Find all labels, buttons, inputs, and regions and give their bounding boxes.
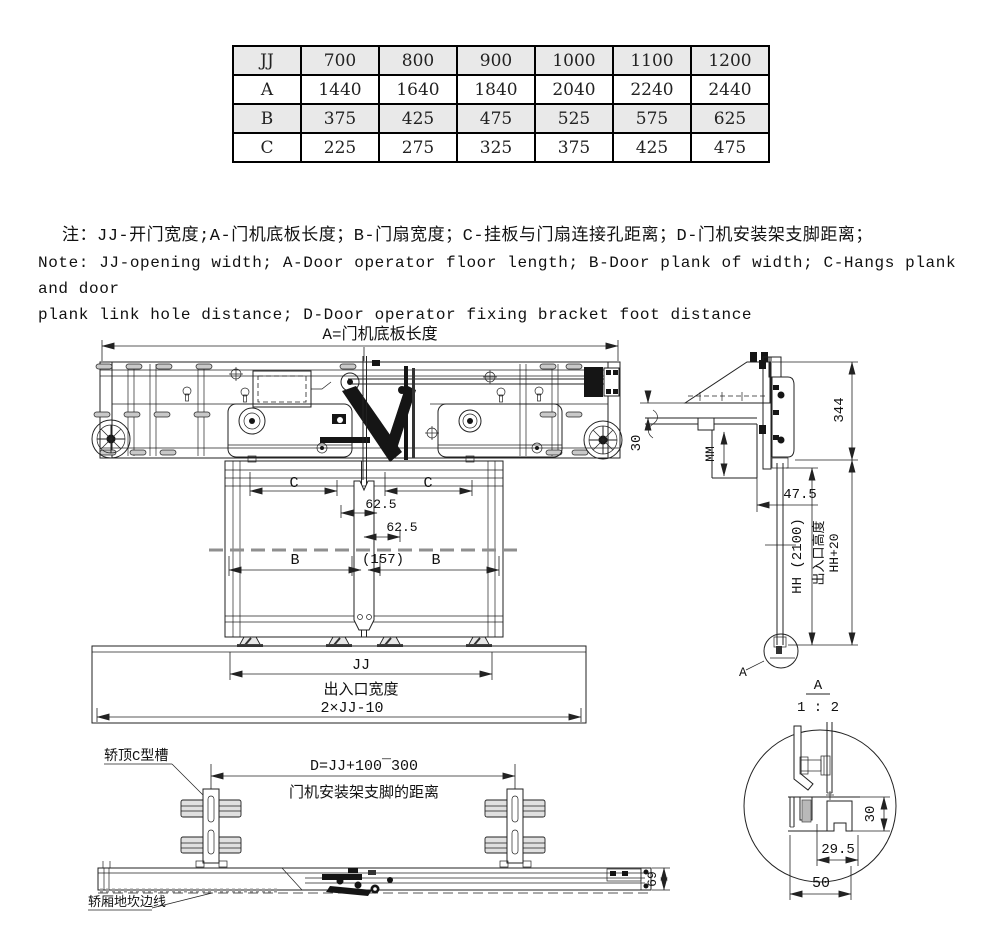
- detail-scale-value: 1 : 2: [797, 700, 839, 716]
- detail-dim-50-label: 50: [812, 875, 830, 892]
- detail-view: 30 29.5 50: [744, 722, 896, 900]
- dim-69: 69: [645, 868, 670, 890]
- entrance-height-label: 出入口高度: [811, 520, 827, 585]
- detail-dim-29-5-label: 29.5: [821, 842, 855, 858]
- drive-belt: [348, 379, 612, 384]
- right-bracket: [485, 789, 545, 867]
- dim-47-5: 47.5: [757, 470, 818, 512]
- detail-hanger-bracket: [794, 726, 813, 790]
- detail-dim-30-label: 30: [863, 806, 879, 823]
- detail-bolt: [800, 756, 830, 775]
- drawing-sheet: JJ 700 800 900 1000 1100 1200 A 1440 164…: [0, 0, 1000, 927]
- dim-69-label: 69: [645, 871, 660, 887]
- dim-a: A=门机底板长度: [102, 325, 618, 361]
- dim-total-label: 2×JJ-10: [320, 700, 383, 717]
- dim-344-label: 344: [832, 397, 848, 422]
- detail-dim-30: 30: [852, 797, 890, 831]
- dim-hh20-label: HH+20: [827, 533, 842, 572]
- detail-door-panel: [827, 722, 832, 793]
- door-panels: C C 62.5 62.5: [209, 461, 519, 647]
- detail-callout: A A 1 : 2: [739, 634, 839, 716]
- plan-view: 轿顶C型槽: [88, 748, 670, 910]
- dim-hh-label: HH (2100): [790, 518, 806, 594]
- detail-scale-name: A: [814, 678, 823, 694]
- c-channel-callout: 轿顶C型槽: [104, 748, 204, 796]
- sill-edge-callout: 轿厢地坎边线: [88, 893, 212, 910]
- right-drive-block: [584, 367, 619, 397]
- dim-344-hh20: 344 出入口高度 HH+20: [772, 362, 858, 645]
- dim-30-label: 30: [629, 435, 645, 452]
- plan-mechanism: [322, 868, 393, 896]
- right-pulley: [584, 421, 622, 459]
- detail-sill-profile: [788, 791, 860, 831]
- dim-a-label: A=门机底板长度: [322, 325, 437, 344]
- entrance-width-label: 出入口宽度: [323, 681, 398, 699]
- sill-and-width-dims: JJ 出入口宽度 2×JJ-10: [92, 646, 586, 723]
- car-wall: [645, 410, 757, 478]
- base-plate: [98, 861, 651, 896]
- dim-c-left-label: C: [289, 475, 298, 492]
- dim-d: D=JJ+100¯300 门机安装架支脚的距离: [211, 758, 515, 802]
- dim-mm-label: MM: [703, 446, 718, 462]
- controller-box: [253, 371, 331, 407]
- dim-62-5-lower-label: 62.5: [386, 520, 417, 535]
- dim-d-label: D=JJ+100¯300: [310, 758, 418, 775]
- dim-62-5-upper-label: 62.5: [365, 497, 396, 512]
- dim-b-left-label: B: [290, 552, 299, 569]
- left-pulley: [92, 420, 130, 458]
- c-channel-label: 轿顶C型槽: [104, 748, 168, 765]
- left-hanger-plate: [228, 404, 352, 457]
- detail-a-label: A: [739, 665, 747, 680]
- technical-drawing: A=门机底板长度: [0, 0, 1000, 927]
- mounting-bracket: [685, 352, 770, 403]
- dim-b-right-label: B: [431, 552, 440, 569]
- bracket-distance-label: 门机安装架支脚的距离: [289, 784, 439, 802]
- dim-mm: MM: [703, 432, 724, 476]
- front-view: A=门机底板长度: [92, 325, 622, 723]
- dim-c-right-label: C: [423, 475, 432, 492]
- side-view: MM 30: [629, 352, 858, 716]
- dim-jj-label: JJ: [352, 657, 370, 674]
- dim-62-5: 62.5 62.5: [341, 497, 418, 542]
- dim-center-gap-label: (157): [362, 552, 404, 568]
- left-bracket: [181, 789, 241, 867]
- dim-30: 30: [629, 391, 686, 451]
